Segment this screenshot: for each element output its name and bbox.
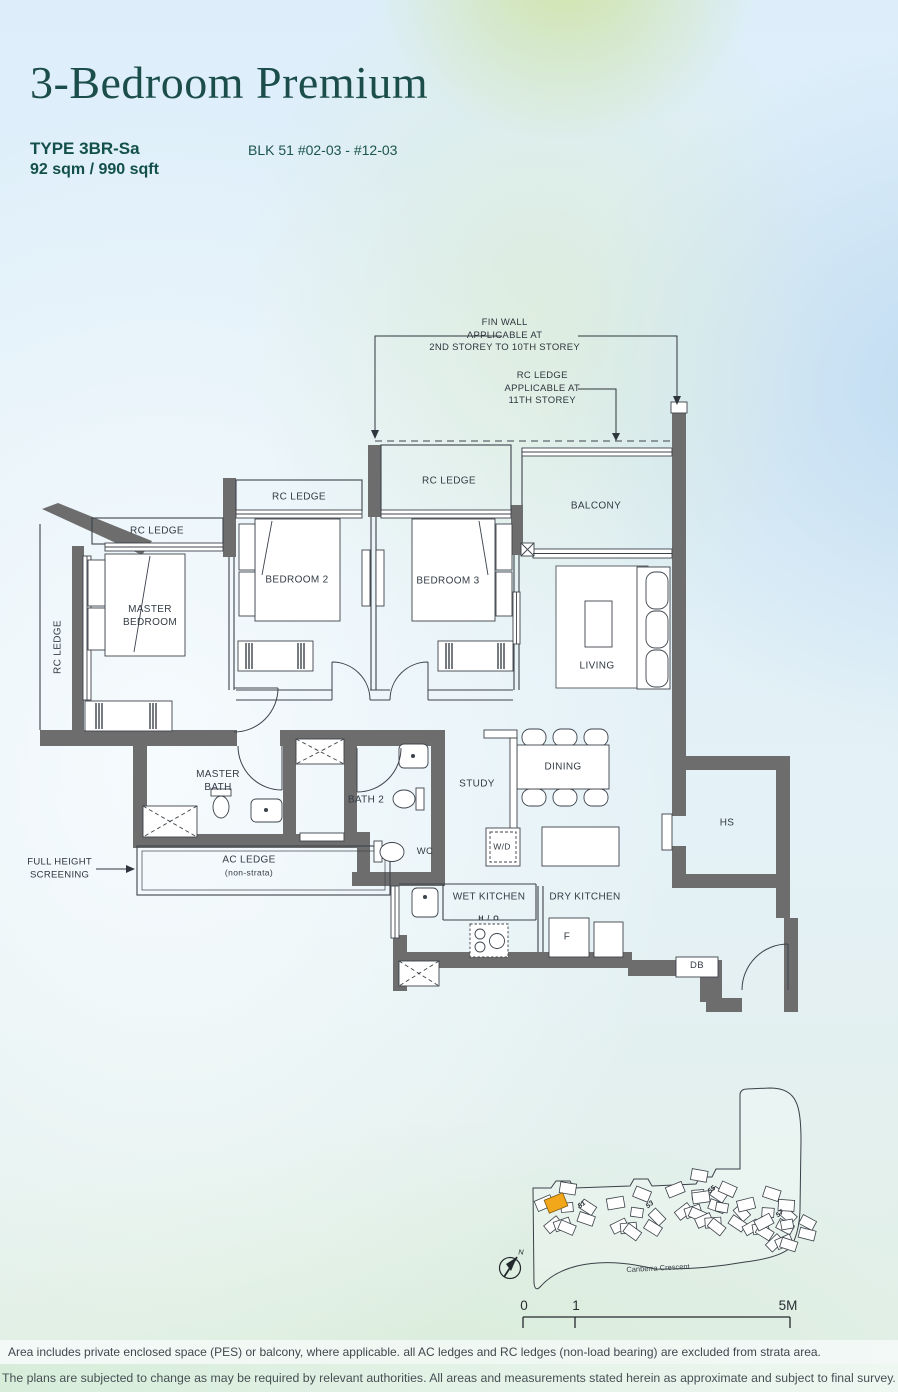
scale-bar-graphic	[523, 1317, 790, 1328]
label-washer-dryer: W/D	[493, 841, 511, 852]
note-full-height-screening: FULL HEIGHT SCREENING	[27, 856, 92, 881]
scale-5m: 5M	[779, 1298, 798, 1313]
label-master-bath: MASTER BATH	[196, 768, 240, 794]
label-dry-kitchen: DRY KITCHEN	[549, 891, 620, 904]
floor-plan-drawing	[0, 0, 898, 1392]
label-wc: WC	[417, 846, 434, 858]
label-fridge: F	[564, 931, 570, 944]
note-fin-wall: FIN WALL APPLICABLE AT 2ND STOREY TO 10T…	[429, 317, 580, 355]
label-rc-ledge-br2: RC LEDGE	[272, 491, 326, 504]
floor-plan-page: 3-Bedroom Premium TYPE 3BR-Sa 92 sqm / 9…	[0, 0, 898, 1392]
label-rc-ledge-master: RC LEDGE	[130, 525, 184, 538]
label-hs: HS	[720, 817, 735, 830]
site-map	[500, 1088, 822, 1289]
label-ac-ledge-sub: (non-strata)	[225, 867, 273, 878]
label-living: LIVING	[580, 660, 615, 673]
label-wet-kitchen: WET KITCHEN	[453, 891, 526, 904]
label-bedroom-2: BEDROOM 2	[265, 574, 328, 587]
label-rc-ledge-left: RC LEDGE	[53, 620, 64, 674]
plan-windows	[83, 402, 718, 977]
north-label: N	[518, 1248, 523, 1257]
scale-0: 0	[520, 1298, 528, 1313]
label-dining: DINING	[544, 761, 581, 774]
label-master-bedroom: MASTER BEDROOM	[123, 603, 177, 629]
disclaimer-line-2: The plans are subjected to change as may…	[0, 1364, 898, 1392]
label-ac-ledge: AC LEDGE	[222, 854, 275, 867]
label-balcony: BALCONY	[571, 500, 621, 513]
label-bedroom-3: BEDROOM 3	[416, 575, 479, 588]
note-rc-ledge-11: RC LEDGE APPLICABLE AT 11TH STOREY	[504, 370, 580, 408]
label-hob-oven: H / O	[478, 914, 499, 923]
label-db: DB	[690, 960, 704, 972]
disclaimer-line-1: Area includes private enclosed space (PE…	[0, 1340, 898, 1364]
north-arrow-icon	[500, 1257, 521, 1279]
scale-1: 1	[572, 1298, 580, 1313]
label-study: STUDY	[459, 778, 495, 791]
label-rc-ledge-br3: RC LEDGE	[422, 475, 476, 488]
label-bath-2: BATH 2	[348, 794, 384, 807]
